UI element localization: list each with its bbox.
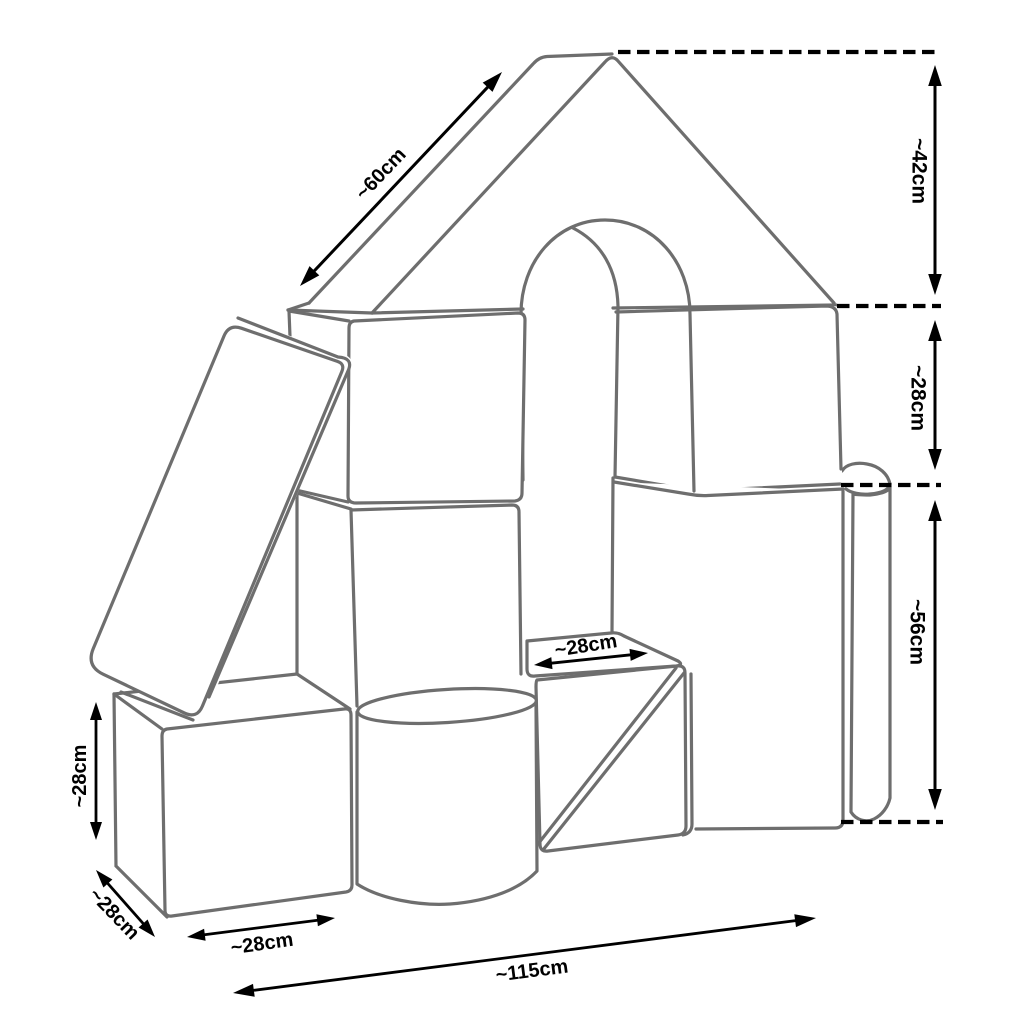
- svg-text:~28cm: ~28cm: [907, 365, 930, 431]
- svg-text:~28cm: ~28cm: [69, 745, 91, 808]
- svg-text:~42cm: ~42cm: [908, 138, 931, 204]
- svg-text:~56cm: ~56cm: [906, 599, 929, 665]
